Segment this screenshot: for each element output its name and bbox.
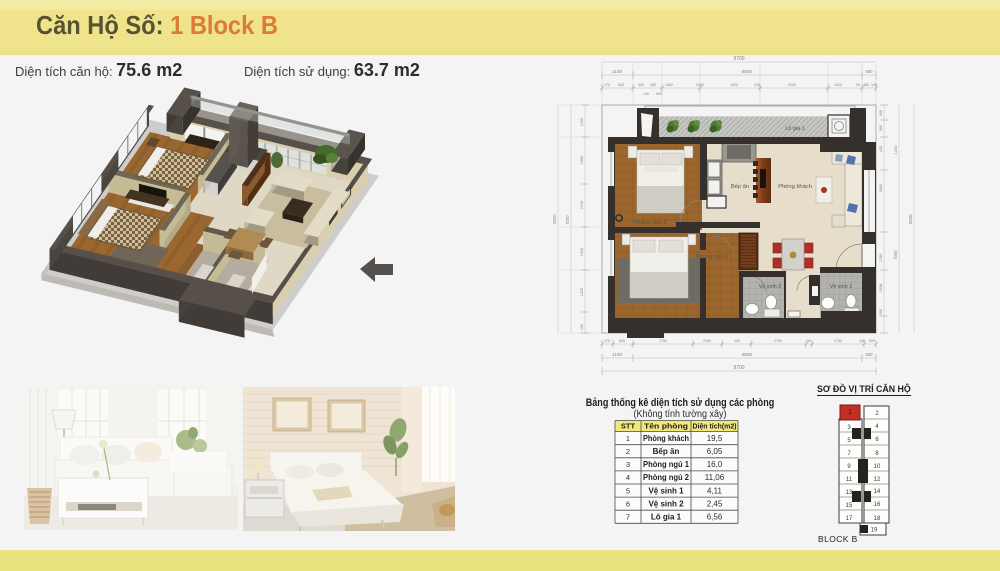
svg-text:9700: 9700 [733, 56, 744, 62]
svg-text:205: 205 [879, 309, 883, 315]
svg-text:2,45: 2,45 [707, 499, 723, 508]
svg-text:1: 1 [848, 409, 852, 416]
svg-text:830: 830 [619, 339, 625, 343]
svg-text:455: 455 [638, 83, 644, 87]
svg-text:Vệ sinh 2: Vệ sinh 2 [648, 499, 684, 508]
svg-text:Phòng ngủ 2: Phòng ngủ 2 [643, 473, 690, 482]
svg-text:540: 540 [879, 110, 883, 116]
svg-text:6,56: 6,56 [707, 513, 723, 522]
svg-text:Bếp ăn: Bếp ăn [653, 447, 680, 456]
svg-text:6: 6 [626, 499, 630, 508]
svg-text:Lô gia 1: Lô gia 1 [785, 126, 805, 132]
svg-text:3: 3 [626, 460, 630, 469]
svg-text:130: 130 [580, 324, 584, 330]
svg-text:Lô gia 1: Lô gia 1 [651, 513, 682, 522]
svg-text:140: 140 [643, 92, 649, 96]
svg-text:STT: STT [621, 422, 636, 431]
svg-text:Phòng ngủ 1: Phòng ngủ 1 [634, 219, 667, 226]
svg-text:19: 19 [871, 528, 878, 534]
svg-text:17: 17 [846, 516, 853, 522]
svg-text:10: 10 [874, 464, 881, 470]
svg-text:9700: 9700 [733, 365, 744, 371]
svg-text:1030: 1030 [834, 83, 842, 87]
svg-text:4: 4 [626, 473, 630, 482]
svg-text:1200: 1200 [879, 254, 883, 262]
svg-text:2200: 2200 [788, 83, 796, 87]
svg-text:4,11: 4,11 [707, 486, 723, 495]
svg-text:8500: 8500 [742, 352, 753, 357]
svg-text:245: 245 [754, 83, 760, 87]
svg-text:905: 905 [656, 92, 662, 96]
svg-text:500: 500 [866, 352, 874, 357]
svg-text:16: 16 [874, 502, 881, 508]
svg-text:7000: 7000 [893, 250, 898, 260]
svg-text:15: 15 [846, 503, 853, 509]
svg-text:1080: 1080 [665, 83, 673, 87]
svg-text:14: 14 [874, 489, 881, 495]
svg-text:960: 960 [879, 125, 883, 131]
svg-text:1200: 1200 [893, 145, 898, 155]
svg-text:170: 170 [604, 339, 610, 343]
svg-text:13: 13 [846, 490, 853, 496]
svg-text:1638: 1638 [879, 284, 883, 292]
svg-text:2155: 2155 [703, 339, 711, 343]
svg-text:450: 450 [650, 83, 656, 87]
svg-text:Tên phòng: Tên phòng [644, 422, 688, 431]
svg-text:1100: 1100 [612, 69, 622, 74]
svg-text:19,5: 19,5 [707, 434, 723, 443]
svg-text:11,06: 11,06 [705, 473, 725, 482]
svg-text:1730: 1730 [834, 339, 842, 343]
svg-text:1200: 1200 [580, 118, 584, 126]
svg-text:1220: 1220 [580, 288, 584, 296]
svg-text:11: 11 [846, 477, 853, 483]
svg-text:2: 2 [626, 447, 630, 456]
svg-text:16,0: 16,0 [707, 460, 723, 469]
svg-text:1800: 1800 [580, 156, 584, 164]
svg-text:18: 18 [874, 516, 881, 522]
svg-text:8500: 8500 [742, 69, 753, 74]
svg-text:Diện tích(m2): Diện tích(m2) [693, 422, 737, 431]
svg-text:1500: 1500 [580, 248, 584, 256]
svg-text:6,05: 6,05 [707, 447, 723, 456]
svg-text:1: 1 [626, 434, 630, 443]
svg-text:Phòng khách: Phòng khách [778, 184, 812, 190]
svg-text:Phòng khách: Phòng khách [643, 434, 689, 443]
svg-text:12: 12 [874, 477, 881, 483]
svg-text:7: 7 [626, 513, 630, 522]
svg-text:7000: 7000 [565, 215, 570, 225]
svg-text:1100: 1100 [612, 352, 622, 357]
svg-text:50: 50 [856, 83, 860, 87]
svg-text:Phòng ngủ 1: Phòng ngủ 1 [643, 460, 690, 469]
svg-text:2410: 2410 [580, 201, 584, 209]
svg-text:Vệ sinh 1: Vệ sinh 1 [830, 284, 852, 290]
svg-text:Bếp ăn: Bếp ăn [731, 184, 749, 190]
svg-text:100: 100 [734, 339, 740, 343]
svg-text:5: 5 [626, 486, 630, 495]
svg-text:1500: 1500 [730, 83, 738, 87]
svg-text:Vệ sinh 2: Vệ sinh 2 [759, 284, 781, 290]
svg-text:Vệ sinh 1: Vệ sinh 1 [648, 486, 684, 495]
svg-text:170: 170 [604, 83, 610, 87]
svg-text:3360: 3360 [879, 184, 883, 192]
svg-text:8200: 8200 [908, 214, 913, 224]
svg-text:2760: 2760 [774, 339, 782, 343]
svg-text:405: 405 [879, 146, 883, 152]
svg-text:8200: 8200 [552, 214, 557, 224]
svg-text:500: 500 [869, 339, 875, 343]
svg-text:830: 830 [618, 83, 624, 87]
svg-text:500: 500 [866, 69, 874, 74]
svg-text:1750: 1750 [659, 339, 667, 343]
